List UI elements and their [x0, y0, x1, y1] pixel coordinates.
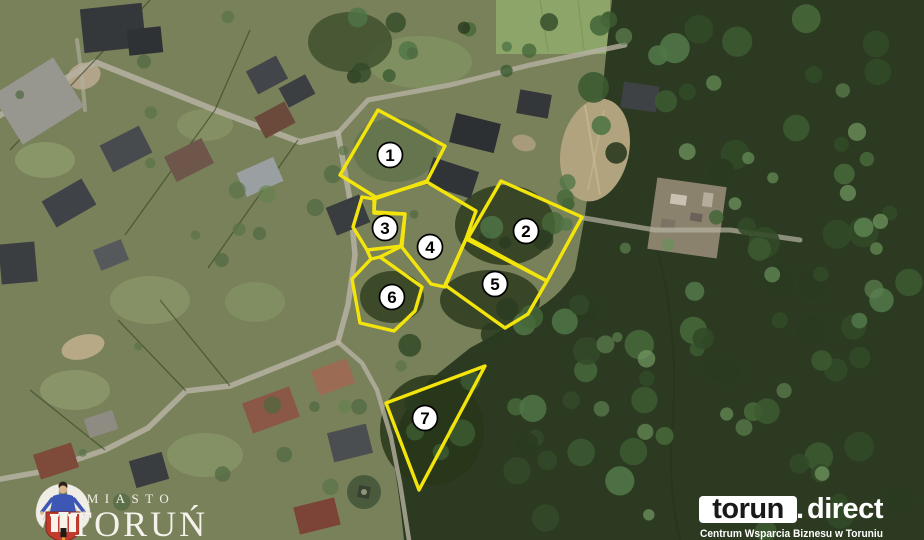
- plot-number: 1: [385, 146, 394, 165]
- tree-crown: [560, 218, 573, 231]
- tree-crown: [811, 350, 832, 371]
- tree-crown: [796, 316, 825, 345]
- tree-crown: [480, 216, 503, 239]
- tree-crown: [503, 457, 530, 484]
- tree-crown: [783, 115, 810, 142]
- tree-crown: [848, 123, 866, 141]
- tree-crown: [813, 267, 828, 282]
- tree-crown: [578, 72, 609, 103]
- tree-crown: [849, 347, 870, 368]
- tree-crown: [307, 199, 324, 216]
- tree-crown: [398, 334, 421, 357]
- tree-crown: [605, 142, 627, 164]
- partner-logo-secondary: direct: [807, 493, 884, 525]
- tree-crown: [229, 182, 246, 199]
- tree-crown: [386, 12, 406, 32]
- tree-crown: [605, 466, 634, 495]
- house: [620, 82, 659, 113]
- partner-logo-primary: torun: [712, 493, 784, 525]
- tree-crown: [522, 44, 536, 58]
- angel-head: [59, 486, 67, 494]
- tree-crown: [309, 401, 320, 412]
- tree-crown: [496, 298, 518, 320]
- tree-crown: [643, 509, 654, 520]
- tree-crown: [79, 449, 87, 457]
- tree-crown: [253, 227, 266, 240]
- plot-number: 2: [521, 222, 530, 241]
- satellite-map: 1 2 3 4 5 6 7: [0, 0, 924, 540]
- tree-crown: [709, 158, 734, 183]
- tree-crown: [860, 152, 874, 166]
- tree-crown: [532, 504, 559, 531]
- tree-crown: [693, 328, 714, 349]
- tree-crown: [742, 152, 754, 164]
- tree-crown: [233, 223, 246, 236]
- tree-crown: [637, 424, 653, 440]
- tree-crown: [620, 243, 631, 254]
- tree-crown: [134, 342, 142, 350]
- tree-crown: [499, 237, 511, 249]
- tree-crown: [662, 238, 675, 251]
- tree-crown: [15, 90, 24, 99]
- tree-crown: [777, 383, 792, 398]
- tree-crown: [612, 332, 622, 342]
- tree-crown: [351, 399, 367, 415]
- round-garden: [347, 475, 381, 509]
- tree-crown: [338, 146, 348, 156]
- tree-crown: [638, 350, 656, 368]
- tree-crown: [538, 451, 558, 471]
- tree-crown: [348, 8, 368, 28]
- tree-crown: [873, 214, 888, 229]
- tree-crown: [620, 438, 647, 465]
- tree-crown: [500, 65, 512, 77]
- tree-crown: [685, 282, 704, 301]
- tree-crown: [258, 185, 276, 203]
- tree-crown: [789, 454, 809, 474]
- plot-number: 5: [490, 275, 499, 294]
- tree-crown: [338, 399, 351, 412]
- tree-crown: [573, 337, 601, 365]
- tree-crown: [685, 15, 714, 44]
- plot-badge-6: 6: [380, 285, 405, 310]
- tree-crown: [540, 13, 558, 31]
- tree-crown: [383, 69, 396, 82]
- tree-crown: [895, 269, 922, 296]
- tree-crown: [655, 90, 677, 112]
- plot-number: 6: [387, 288, 396, 307]
- plot-badge-5: 5: [483, 272, 508, 297]
- tree-crown: [736, 419, 753, 436]
- tree-crown: [834, 164, 855, 185]
- tree-crown: [729, 197, 742, 210]
- tree-crown: [145, 106, 158, 119]
- tree-crown: [840, 185, 856, 201]
- partner-logo-tagline: Centrum Wsparcia Biznesu w Toruniu: [700, 528, 883, 540]
- tree-crown: [823, 220, 852, 249]
- tree-crown: [277, 447, 293, 463]
- tree-crown: [567, 439, 595, 467]
- tree-crown: [322, 479, 338, 495]
- tree-crown: [458, 22, 470, 34]
- tree-crown: [592, 116, 611, 135]
- tree-crown: [351, 63, 371, 83]
- tree-crown: [772, 312, 788, 328]
- tree-crown: [834, 137, 849, 152]
- tree-crown: [836, 83, 850, 97]
- tree-crown: [679, 143, 696, 160]
- tree-crown: [222, 11, 235, 24]
- tree-crown: [864, 59, 891, 86]
- tree-crown: [805, 66, 822, 83]
- tree-crown: [557, 189, 574, 206]
- tree-crown: [815, 466, 830, 481]
- tree-crown: [679, 83, 696, 100]
- tree-crown: [852, 313, 868, 329]
- tree-crown: [407, 47, 419, 59]
- tree-crown: [639, 371, 654, 386]
- tree-crown: [754, 398, 780, 424]
- tree-crown: [844, 432, 874, 462]
- city-logo-torun: TORUŃ: [70, 504, 208, 540]
- plot-badge-3: 3: [373, 216, 398, 241]
- tree-crown: [590, 15, 610, 35]
- plot-badge-4: 4: [418, 235, 443, 260]
- partner-logo: torun . direct Centrum Wsparcia Biznesu …: [699, 493, 884, 540]
- house: [0, 242, 38, 285]
- tree-crown: [767, 172, 778, 183]
- tree-crown: [594, 401, 610, 417]
- tree-crown: [502, 42, 512, 52]
- tree-crown: [448, 419, 475, 446]
- plot-badge-2: 2: [514, 219, 539, 244]
- tree-crown: [137, 55, 151, 69]
- tree-crown: [656, 427, 674, 445]
- tree-crown: [648, 45, 668, 65]
- tree-crown: [748, 238, 771, 261]
- tree-crown: [863, 31, 890, 58]
- tree-crown: [410, 210, 419, 219]
- tree-crown: [560, 174, 576, 190]
- tree-crown: [395, 360, 406, 371]
- tree-crown: [597, 335, 615, 353]
- tree-crown: [563, 391, 581, 409]
- tree-crown: [191, 230, 200, 239]
- house: [127, 26, 164, 55]
- tree-crown: [519, 395, 546, 422]
- tree-crown: [792, 4, 821, 33]
- tree-crown: [215, 466, 231, 482]
- plot-badge-1: 1: [378, 143, 403, 168]
- tree-crown: [516, 432, 539, 455]
- tree-crown: [888, 488, 913, 513]
- plot-number: 7: [420, 409, 429, 428]
- tree-crown: [865, 280, 884, 299]
- tree-crown: [215, 253, 229, 267]
- aerial-map-image: 1 2 3 4 5 6 7: [0, 0, 924, 540]
- plot-badge-7: 7: [413, 406, 438, 431]
- plot-number: 3: [380, 219, 389, 238]
- tree-crown: [722, 27, 752, 57]
- partner-logo-dot: .: [796, 493, 804, 525]
- tree-crown: [264, 396, 282, 414]
- tree-crown: [720, 407, 733, 420]
- tree-crown: [631, 387, 657, 413]
- tree-crown: [854, 218, 874, 238]
- tree-crown: [569, 295, 589, 315]
- tree-crown: [615, 28, 632, 45]
- tree-crown: [709, 210, 724, 225]
- tree-crown: [764, 267, 780, 283]
- tree-crown: [701, 358, 722, 379]
- plot-number: 4: [425, 238, 435, 257]
- tree-crown: [870, 242, 883, 255]
- tree-crown: [145, 158, 155, 168]
- tree-crown: [706, 75, 721, 90]
